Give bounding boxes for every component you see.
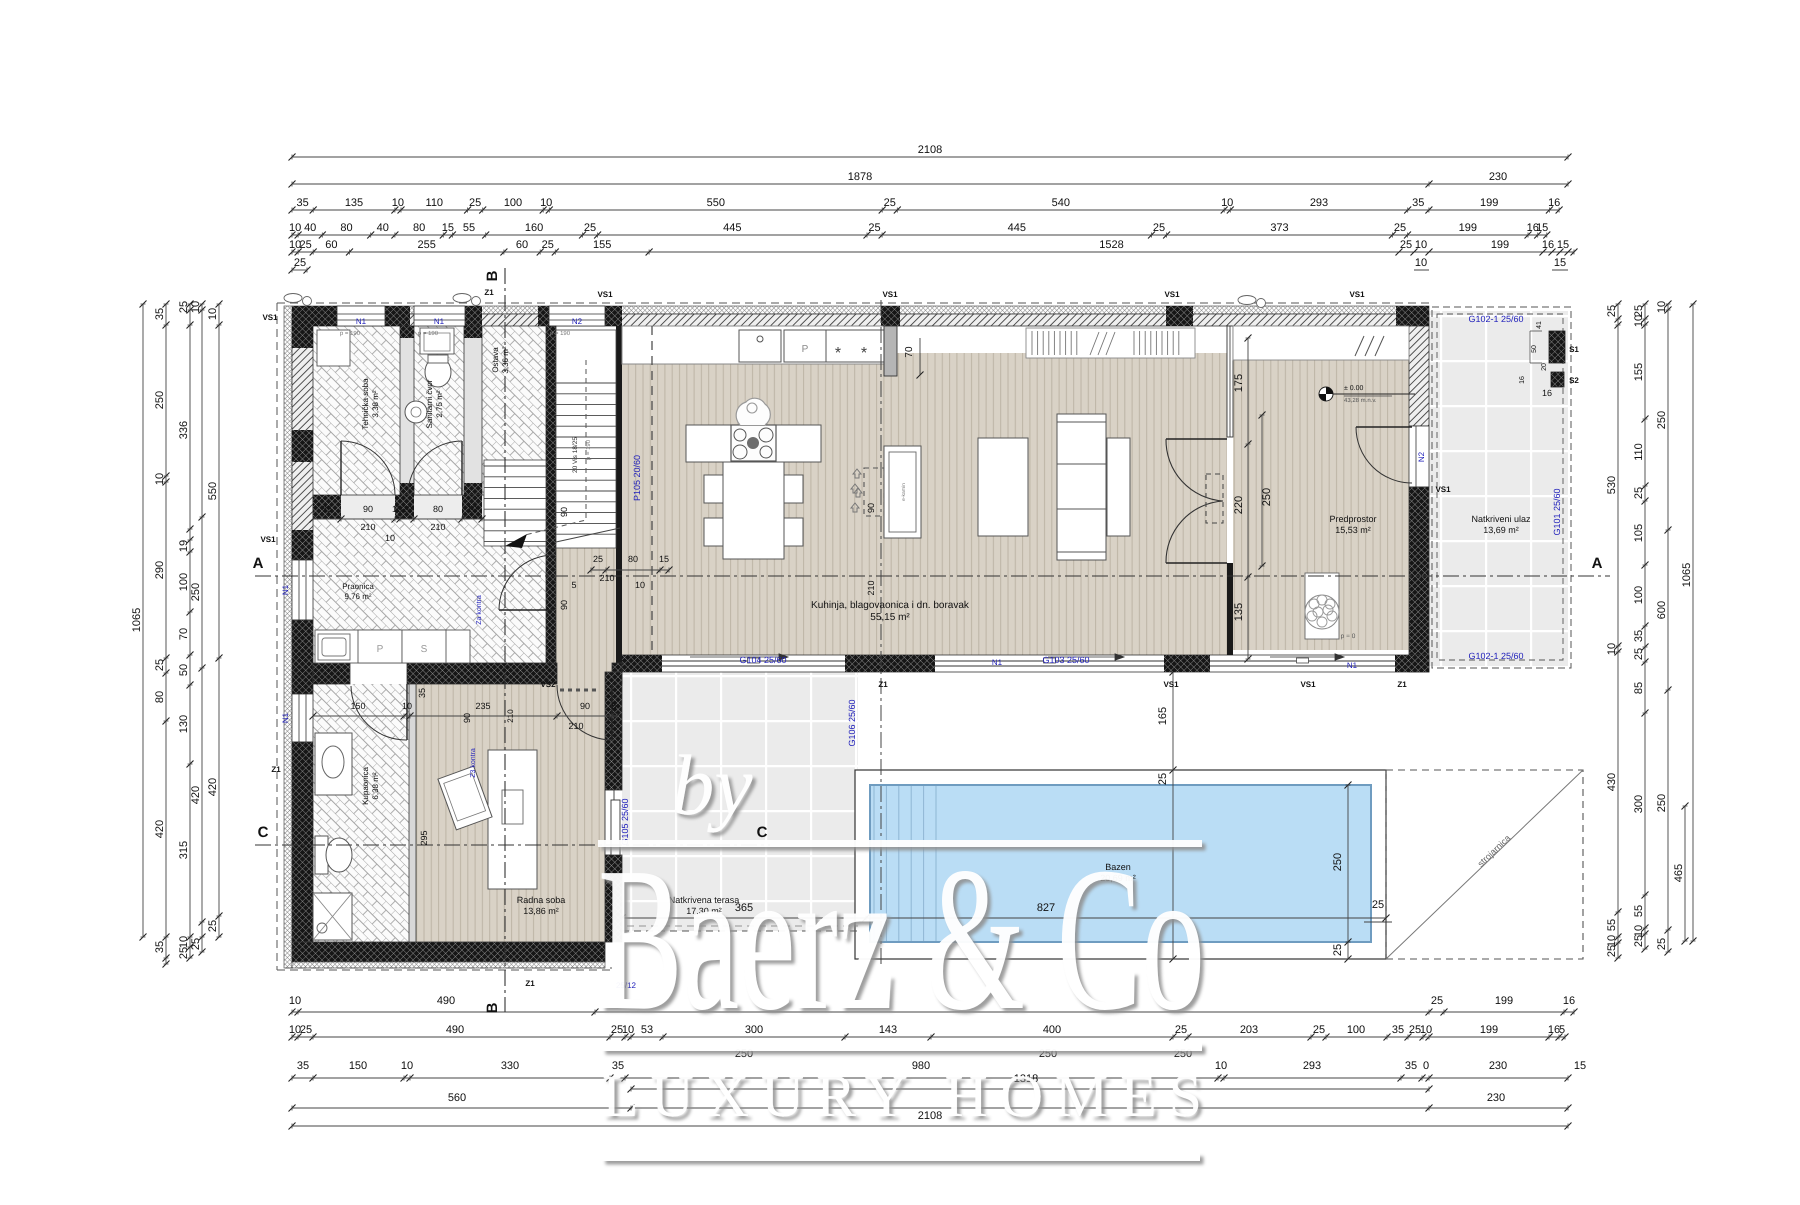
svg-text:p = 0: p = 0 xyxy=(1341,633,1356,640)
svg-text:35: 35 xyxy=(1633,630,1645,642)
svg-text:25: 25 xyxy=(1153,222,1165,234)
svg-text:3,38 m²: 3,38 m² xyxy=(371,390,380,417)
svg-text:VS1: VS1 xyxy=(1300,680,1316,689)
svg-text:25: 25 xyxy=(178,301,190,313)
svg-text:10: 10 xyxy=(1633,315,1645,327)
svg-text:250: 250 xyxy=(1656,794,1668,812)
svg-text:35: 35 xyxy=(154,308,166,320)
svg-text:105: 105 xyxy=(1633,524,1645,542)
svg-text:203: 203 xyxy=(1240,1024,1258,1036)
svg-text:25: 25 xyxy=(584,222,596,234)
svg-text:445: 445 xyxy=(723,222,741,234)
svg-text:55: 55 xyxy=(1633,905,1645,917)
svg-text:55,15 m²: 55,15 m² xyxy=(870,612,910,623)
svg-text:Z1: Z1 xyxy=(1397,680,1407,689)
svg-text:295: 295 xyxy=(419,830,429,845)
svg-text:199: 199 xyxy=(1459,222,1477,234)
svg-text:550: 550 xyxy=(207,482,219,500)
svg-text:VS1: VS1 xyxy=(260,535,276,544)
svg-text:N2: N2 xyxy=(572,317,583,326)
svg-text:150: 150 xyxy=(350,701,365,711)
svg-text:5: 5 xyxy=(1559,1024,1565,1036)
svg-text:85: 85 xyxy=(1633,682,1645,694)
svg-text:35: 35 xyxy=(1412,197,1424,209)
svg-text:10: 10 xyxy=(467,504,477,514)
svg-text:80: 80 xyxy=(413,222,425,234)
svg-text:465: 465 xyxy=(1673,864,1685,882)
svg-text:35: 35 xyxy=(1392,1024,1404,1036)
svg-text:25: 25 xyxy=(1332,944,1344,956)
svg-text:25: 25 xyxy=(299,239,311,251)
svg-text:Tehnička soba: Tehnička soba xyxy=(361,378,370,430)
svg-text:VS1: VS1 xyxy=(882,290,898,299)
svg-text:15: 15 xyxy=(1557,239,1569,251)
svg-text:S1: S1 xyxy=(1569,345,1579,354)
svg-text:293: 293 xyxy=(1303,1060,1321,1072)
svg-text:10: 10 xyxy=(1215,1060,1227,1072)
svg-text:25: 25 xyxy=(190,938,202,950)
svg-text:199: 199 xyxy=(1480,1024,1498,1036)
svg-text:25: 25 xyxy=(207,920,219,932)
svg-text:Kupaonica: Kupaonica xyxy=(361,767,370,805)
svg-text:by: by xyxy=(671,737,753,833)
svg-text:210: 210 xyxy=(599,573,614,583)
svg-text:420: 420 xyxy=(154,820,166,838)
svg-text:210: 210 xyxy=(866,580,876,595)
svg-text:199: 199 xyxy=(1495,995,1513,1007)
svg-text:150: 150 xyxy=(349,1060,367,1072)
svg-text:35: 35 xyxy=(297,1060,309,1072)
svg-text:10: 10 xyxy=(1656,301,1668,313)
svg-text:p = 190: p = 190 xyxy=(340,330,361,337)
svg-text:55: 55 xyxy=(1606,919,1618,931)
svg-text:80: 80 xyxy=(628,554,638,564)
svg-text:10: 10 xyxy=(1415,257,1427,269)
svg-text:10: 10 xyxy=(289,222,301,234)
svg-text:55: 55 xyxy=(463,222,475,234)
svg-text:100: 100 xyxy=(504,197,522,209)
svg-text:90: 90 xyxy=(559,600,569,610)
svg-text:90: 90 xyxy=(363,504,373,514)
svg-text:210: 210 xyxy=(506,709,515,723)
svg-text:25: 25 xyxy=(1606,945,1618,957)
svg-text:15: 15 xyxy=(442,222,454,234)
svg-text:110: 110 xyxy=(1633,443,1645,461)
svg-text:35: 35 xyxy=(296,197,308,209)
svg-text:160: 160 xyxy=(525,222,543,234)
svg-text:210: 210 xyxy=(360,522,375,532)
svg-text:Z1: Z1 xyxy=(271,765,281,774)
svg-text:± 0.00: ± 0.00 xyxy=(1344,385,1364,392)
svg-text:13,86 m²: 13,86 m² xyxy=(523,906,559,916)
svg-text:Z1: Z1 xyxy=(878,680,888,689)
svg-text:p = 190: p = 190 xyxy=(585,439,592,460)
svg-text:Praonica: Praonica xyxy=(342,582,374,591)
svg-text:19: 19 xyxy=(178,540,190,552)
svg-text:373: 373 xyxy=(1270,222,1288,234)
svg-text:235: 235 xyxy=(475,701,490,711)
svg-text:25: 25 xyxy=(884,197,896,209)
svg-text:16: 16 xyxy=(1563,995,1575,1007)
svg-text:250: 250 xyxy=(1261,488,1273,506)
svg-text:25: 25 xyxy=(1313,1024,1325,1036)
svg-text:G102-1 25/60: G102-1 25/60 xyxy=(1468,651,1523,661)
svg-text:16: 16 xyxy=(1542,239,1554,251)
svg-text:6,38 m²: 6,38 m² xyxy=(371,772,380,799)
svg-text:35: 35 xyxy=(322,504,332,514)
svg-text:25: 25 xyxy=(1372,899,1384,911)
svg-text:10: 10 xyxy=(207,308,219,320)
svg-text:N2: N2 xyxy=(1417,451,1426,462)
svg-text:13,69 m²: 13,69 m² xyxy=(1483,525,1519,535)
svg-text:Z1: Z1 xyxy=(484,288,494,297)
svg-text:560: 560 xyxy=(448,1092,466,1104)
svg-text:220: 220 xyxy=(1233,496,1245,514)
svg-text:490: 490 xyxy=(437,995,455,1007)
svg-text:VS1: VS1 xyxy=(1164,290,1180,299)
svg-text:S: S xyxy=(421,644,428,655)
svg-text:Radna soba: Radna soba xyxy=(517,895,566,905)
svg-text:110: 110 xyxy=(426,197,444,209)
svg-text:10: 10 xyxy=(392,504,402,514)
svg-text:p = 190: p = 190 xyxy=(418,330,439,337)
svg-text:490: 490 xyxy=(446,1024,464,1036)
svg-text:336: 336 xyxy=(178,421,190,439)
svg-text:230: 230 xyxy=(1487,1092,1505,1104)
svg-text:35: 35 xyxy=(1405,1060,1417,1072)
svg-text:90: 90 xyxy=(559,507,569,517)
svg-text:80: 80 xyxy=(154,691,166,703)
svg-text:10: 10 xyxy=(1221,197,1233,209)
svg-text:35: 35 xyxy=(417,688,427,698)
svg-text:250: 250 xyxy=(154,391,166,409)
svg-text:25: 25 xyxy=(469,197,481,209)
svg-text:Z3 kontra: Z3 kontra xyxy=(469,748,477,778)
svg-text:199: 199 xyxy=(1480,197,1498,209)
svg-text:90: 90 xyxy=(462,713,472,723)
svg-text:P: P xyxy=(377,644,384,655)
svg-text:90: 90 xyxy=(866,503,876,513)
svg-text:*: * xyxy=(861,345,867,362)
svg-text:25: 25 xyxy=(1431,995,1443,1007)
svg-text:25: 25 xyxy=(178,947,190,959)
svg-text:VS2: VS2 xyxy=(540,680,556,689)
svg-text:155: 155 xyxy=(593,239,611,251)
svg-text:10: 10 xyxy=(178,936,190,948)
svg-text:9,76 m²: 9,76 m² xyxy=(344,592,371,601)
svg-text:445: 445 xyxy=(1008,222,1026,234)
svg-text:230: 230 xyxy=(1489,171,1507,183)
svg-text:10: 10 xyxy=(289,995,301,1007)
svg-text:35: 35 xyxy=(154,941,166,953)
svg-text:N1: N1 xyxy=(434,317,445,326)
svg-text:N1: N1 xyxy=(356,317,367,326)
svg-text:80: 80 xyxy=(340,222,352,234)
svg-text:199: 199 xyxy=(1491,239,1509,251)
svg-text:10: 10 xyxy=(1606,643,1618,655)
svg-text:10: 10 xyxy=(190,301,202,313)
svg-text:Natkriveni ulaz: Natkriveni ulaz xyxy=(1471,514,1531,524)
svg-text:B: B xyxy=(484,270,501,281)
svg-text:N1: N1 xyxy=(281,712,290,723)
svg-text:VS1: VS1 xyxy=(1349,290,1365,299)
svg-text:5: 5 xyxy=(611,701,616,711)
svg-text:250: 250 xyxy=(1332,853,1344,871)
svg-text:N1: N1 xyxy=(1347,661,1358,670)
svg-text:p = 190: p = 190 xyxy=(550,330,571,337)
svg-text:70: 70 xyxy=(178,628,190,640)
svg-text:25: 25 xyxy=(294,257,306,269)
svg-text:G104 25/60: G104 25/60 xyxy=(739,655,786,665)
svg-text:600: 600 xyxy=(1656,601,1668,619)
svg-text:0: 0 xyxy=(1423,1060,1429,1072)
svg-text:210: 210 xyxy=(430,522,445,532)
svg-text:50: 50 xyxy=(178,664,190,676)
svg-text:A: A xyxy=(1592,555,1603,572)
svg-text:135: 135 xyxy=(1233,603,1245,621)
svg-text:43,28 m.n.v.: 43,28 m.n.v. xyxy=(1344,397,1377,404)
svg-text:N1: N1 xyxy=(281,584,290,595)
svg-text:80: 80 xyxy=(433,504,443,514)
svg-text:130: 130 xyxy=(178,715,190,733)
svg-text:315: 315 xyxy=(178,841,190,859)
svg-text:70: 70 xyxy=(904,346,915,358)
svg-text:25: 25 xyxy=(1656,938,1668,950)
svg-text:VS1: VS1 xyxy=(1163,680,1179,689)
svg-text:230: 230 xyxy=(1489,1060,1507,1072)
svg-text:15: 15 xyxy=(1574,1060,1586,1072)
svg-text:25: 25 xyxy=(1633,487,1645,499)
svg-text:10: 10 xyxy=(1415,239,1427,251)
svg-text:10: 10 xyxy=(540,197,552,209)
svg-text:Za kontra: Za kontra xyxy=(475,595,483,625)
svg-text:16: 16 xyxy=(1548,197,1560,209)
svg-text:175: 175 xyxy=(1233,374,1245,392)
svg-text:2,75 m²: 2,75 m² xyxy=(435,390,444,417)
svg-text:15: 15 xyxy=(659,554,669,564)
svg-text:25: 25 xyxy=(542,239,554,251)
svg-text:Predprostor: Predprostor xyxy=(1329,514,1376,524)
svg-text:P: P xyxy=(802,344,809,355)
svg-text:100: 100 xyxy=(178,573,190,591)
svg-text:VS1: VS1 xyxy=(262,313,278,322)
svg-text:1528: 1528 xyxy=(1099,239,1123,251)
svg-text:25: 25 xyxy=(1157,773,1169,785)
svg-text:Baerz & Co: Baerz & Co xyxy=(598,824,1205,1053)
svg-text:40: 40 xyxy=(377,222,389,234)
svg-text:2108: 2108 xyxy=(918,144,942,156)
svg-text:50: 50 xyxy=(1531,345,1538,353)
svg-text:10: 10 xyxy=(402,701,412,711)
svg-text:25: 25 xyxy=(1633,648,1645,660)
svg-text:P105 20/60: P105 20/60 xyxy=(632,455,642,501)
svg-text:100: 100 xyxy=(1633,586,1645,604)
svg-text:3,36 m²: 3,36 m² xyxy=(501,346,510,373)
svg-text:*: * xyxy=(835,345,841,362)
svg-text:20 Vis 18/25: 20 Vis 18/25 xyxy=(572,437,579,473)
svg-text:40: 40 xyxy=(304,222,316,234)
svg-text:25: 25 xyxy=(300,1024,312,1036)
svg-text:25: 25 xyxy=(154,659,166,671)
svg-text:290: 290 xyxy=(154,561,166,579)
svg-text:15,53 m²: 15,53 m² xyxy=(1335,525,1371,535)
svg-text:Sanitarni čvor: Sanitarni čvor xyxy=(425,379,434,428)
svg-text:165: 165 xyxy=(1157,707,1169,725)
svg-text:20: 20 xyxy=(1541,363,1548,371)
svg-text:135: 135 xyxy=(345,197,363,209)
svg-text:330: 330 xyxy=(501,1060,519,1072)
svg-text:430: 430 xyxy=(1606,773,1618,791)
svg-text:41: 41 xyxy=(1536,321,1543,329)
svg-text:16: 16 xyxy=(1519,376,1526,384)
svg-text:293: 293 xyxy=(1310,197,1328,209)
svg-text:15: 15 xyxy=(1536,222,1548,234)
svg-text:25: 25 xyxy=(1633,935,1645,947)
svg-text:25: 25 xyxy=(1400,239,1412,251)
svg-text:25: 25 xyxy=(1394,222,1406,234)
svg-text:540: 540 xyxy=(1052,197,1070,209)
svg-text:C: C xyxy=(258,824,269,841)
svg-text:250: 250 xyxy=(1656,411,1668,429)
svg-text:90: 90 xyxy=(580,701,590,711)
svg-text:B: B xyxy=(484,1002,501,1013)
svg-text:Kuhinja, blagovaonica i dn. bo: Kuhinja, blagovaonica i dn. boravak xyxy=(811,600,970,611)
svg-text:10: 10 xyxy=(385,533,395,543)
svg-text:15: 15 xyxy=(1554,257,1566,269)
svg-text:100: 100 xyxy=(1347,1024,1365,1036)
svg-text:G101 25/60: G101 25/60 xyxy=(1552,488,1562,535)
svg-text:210: 210 xyxy=(568,721,583,731)
svg-text:10: 10 xyxy=(154,473,166,485)
svg-text:G106 25/60: G106 25/60 xyxy=(847,699,857,746)
svg-text:A: A xyxy=(253,555,264,572)
svg-text:VS1: VS1 xyxy=(1435,485,1451,494)
svg-text:G103 25/60: G103 25/60 xyxy=(1042,655,1089,665)
svg-text:e-kamin: e-kamin xyxy=(901,483,907,501)
svg-text:10: 10 xyxy=(1420,1024,1432,1036)
svg-text:550: 550 xyxy=(707,197,725,209)
svg-text:25: 25 xyxy=(868,222,880,234)
svg-text:10: 10 xyxy=(635,580,645,590)
svg-text:250: 250 xyxy=(190,583,202,601)
svg-text:16: 16 xyxy=(1542,388,1552,398)
svg-text:Z1: Z1 xyxy=(525,979,535,988)
svg-text:25: 25 xyxy=(1606,305,1618,317)
svg-text:5: 5 xyxy=(571,580,576,590)
svg-text:G102-1 25/60: G102-1 25/60 xyxy=(1468,314,1523,324)
svg-text:N1: N1 xyxy=(992,658,1003,667)
svg-text:420: 420 xyxy=(207,778,219,796)
svg-text:10: 10 xyxy=(401,1060,413,1072)
svg-text:20: 20 xyxy=(402,504,412,514)
svg-text:300: 300 xyxy=(1633,795,1645,813)
svg-text:25: 25 xyxy=(593,554,603,564)
svg-text:Ostava: Ostava xyxy=(491,347,500,373)
svg-text:60: 60 xyxy=(516,239,528,251)
svg-text:10: 10 xyxy=(392,197,404,209)
svg-text:155: 155 xyxy=(1633,363,1645,381)
svg-text:1065: 1065 xyxy=(1681,563,1693,587)
svg-text:1878: 1878 xyxy=(848,171,872,183)
svg-text:60: 60 xyxy=(325,239,337,251)
svg-text:255: 255 xyxy=(418,239,436,251)
svg-text:S2: S2 xyxy=(1569,376,1579,385)
svg-text:530: 530 xyxy=(1606,476,1618,494)
svg-text:1065: 1065 xyxy=(131,608,143,632)
svg-text:420: 420 xyxy=(190,786,202,804)
svg-text:VS1: VS1 xyxy=(597,290,613,299)
